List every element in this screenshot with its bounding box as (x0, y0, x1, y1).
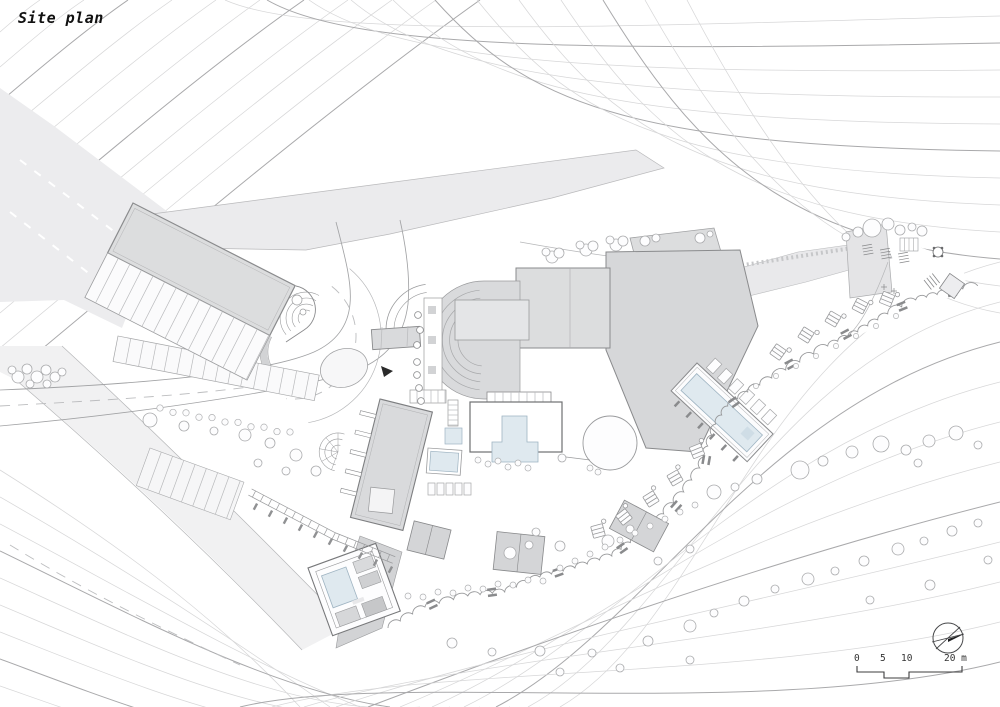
tree-icon (925, 580, 935, 590)
courtyard (455, 300, 529, 340)
tree-icon (179, 421, 189, 431)
tree-icon (26, 380, 34, 388)
tree-icon (555, 541, 565, 551)
tree-icon (752, 474, 762, 484)
large-tree-canopy (583, 416, 637, 470)
tree-icon (739, 596, 749, 606)
main-roof-west (516, 268, 610, 348)
tree-icon (859, 556, 869, 566)
tree-icon (831, 567, 839, 575)
scale-bar: 0 5 10 20 m (854, 653, 967, 678)
tree-icon (901, 445, 911, 455)
scale-label-0: 0 (854, 653, 860, 664)
tree-icon (640, 236, 650, 246)
tree-icon (239, 429, 251, 441)
site-plan-drawing: 0 5 10 20 m (0, 0, 1000, 707)
tree-icon (588, 649, 596, 657)
jacuzzi-pool (445, 428, 462, 444)
tree-icon (643, 636, 653, 646)
tree-icon (853, 227, 863, 237)
tree-icon (254, 459, 262, 467)
annotations: 0 5 10 20 m (854, 623, 967, 678)
tree-icon (504, 547, 516, 559)
tree-icon (652, 234, 660, 242)
drawing-title: Site plan (18, 9, 104, 27)
tree-icon (588, 241, 598, 251)
tree-icon (554, 248, 564, 258)
tree-icon (684, 620, 696, 632)
tree-icon (710, 609, 718, 617)
tree-icon (846, 446, 858, 458)
tree-icon (731, 483, 739, 491)
tree-icon (143, 413, 157, 427)
tree-icon (984, 556, 992, 564)
tree-icon (8, 366, 16, 374)
tree-icon (771, 585, 779, 593)
tree-icon (802, 573, 814, 585)
tree-icon (290, 449, 302, 461)
tree-icon (535, 646, 545, 656)
tree-icon (818, 456, 828, 466)
tree-icon (686, 656, 694, 664)
tree-icon (974, 519, 982, 527)
stairs-northwest (410, 390, 446, 403)
tree-icon (914, 459, 922, 467)
tree-icon (923, 435, 935, 447)
tree-icon (616, 664, 624, 672)
cabana (493, 532, 545, 575)
tree-icon (210, 427, 218, 435)
tree-icon (866, 596, 874, 604)
tree-icon (895, 225, 905, 235)
tree-icon (882, 218, 894, 230)
north-arrow-icon (932, 623, 964, 653)
site-plan-page: 0 5 10 20 m Site plan (0, 0, 1000, 707)
tree-icon (606, 236, 614, 244)
tree-icon (863, 219, 881, 237)
tree-icon (43, 380, 51, 388)
tree-icon (542, 248, 550, 256)
tree-icon (525, 541, 533, 549)
tree-icon (58, 368, 66, 376)
tree-icon (282, 467, 290, 475)
tree-icon (654, 557, 662, 565)
tree-icon (920, 537, 928, 545)
tree-icon (917, 226, 927, 236)
tree-icon (311, 466, 321, 476)
tree-icon (447, 638, 457, 648)
tree-icon (892, 543, 904, 555)
scale-label-5: 5 (880, 653, 886, 664)
scale-label-20: 20 m (944, 653, 967, 664)
tree-icon (791, 461, 809, 479)
small-pool (426, 448, 462, 475)
tree-icon (576, 241, 584, 249)
scale-label-10: 10 (901, 653, 913, 664)
tree-icon (695, 233, 705, 243)
tree-icon (532, 528, 540, 536)
tree-icon (949, 426, 963, 440)
tree-icon (707, 231, 713, 237)
tree-icon (265, 438, 275, 448)
tree-icon (908, 223, 916, 231)
tree-icon (873, 436, 889, 452)
tree-icon (22, 364, 32, 374)
tree-icon (41, 365, 51, 375)
tree-icon (842, 233, 850, 241)
tree-icon (974, 441, 982, 449)
tree-icon (707, 485, 721, 499)
entry-bridge (371, 326, 420, 350)
tree-icon (488, 648, 496, 656)
tree-icon (618, 236, 628, 246)
tree-icon (947, 526, 957, 536)
tree-icon (686, 545, 694, 553)
tree-icon (556, 668, 564, 676)
